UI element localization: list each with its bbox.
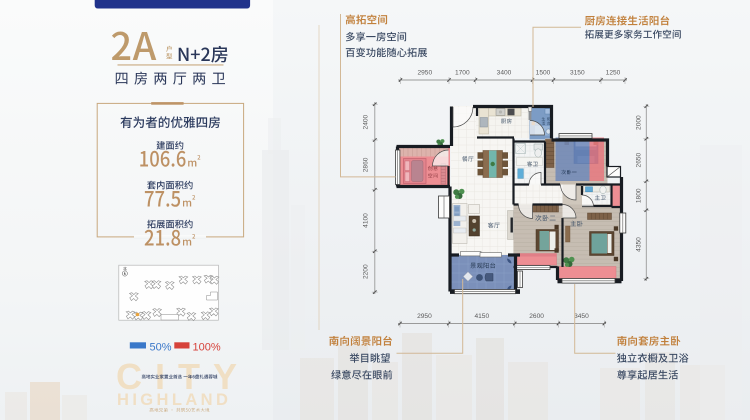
svg-text:1800: 1800: [636, 188, 643, 203]
svg-text:4150: 4150: [474, 313, 489, 320]
svg-text:2860: 2860: [363, 157, 370, 172]
svg-text:1700: 1700: [455, 70, 470, 77]
svg-text:1500: 1500: [536, 70, 551, 77]
svg-text:2650: 2650: [636, 152, 643, 167]
svg-text:2950: 2950: [417, 313, 432, 320]
svg-text:4350: 4350: [636, 237, 643, 252]
svg-text:3150: 3150: [570, 70, 585, 77]
svg-text:4100: 4100: [363, 213, 370, 228]
svg-text:100%: 100%: [193, 342, 221, 354]
svg-text:2950: 2950: [417, 70, 432, 77]
svg-text:2200: 2200: [363, 264, 370, 279]
svg-text:3400: 3400: [497, 70, 512, 77]
svg-text:3450: 3450: [574, 313, 589, 320]
svg-text:2400: 2400: [363, 114, 370, 129]
svg-text:1250: 1250: [606, 70, 621, 77]
svg-text:2000: 2000: [636, 115, 643, 130]
svg-text:2600: 2600: [529, 313, 544, 320]
svg-text:HIGHLAND: HIGHLAND: [117, 391, 231, 409]
svg-text:50%: 50%: [150, 342, 172, 354]
